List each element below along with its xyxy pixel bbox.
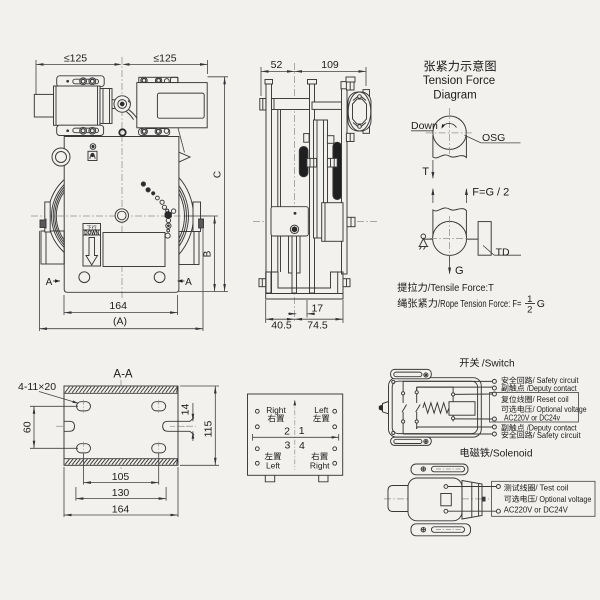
svg-text:/ Test coil: / Test coil	[535, 484, 568, 493]
svg-text:/Tensile Force:T: /Tensile Force:T	[428, 283, 494, 294]
svg-text:164: 164	[109, 300, 127, 312]
svg-text:17: 17	[311, 303, 323, 315]
svg-text:Right: Right	[266, 405, 286, 415]
svg-text:115: 115	[202, 420, 214, 437]
svg-text:A: A	[185, 277, 192, 288]
svg-text:164: 164	[112, 503, 130, 515]
svg-text:4-11×20: 4-11×20	[18, 381, 56, 393]
svg-text:T: T	[422, 166, 429, 178]
svg-text:A-A: A-A	[113, 369, 133, 381]
svg-text:DOWN: DOWN	[84, 230, 99, 236]
svg-text:109: 109	[321, 59, 339, 71]
svg-text:≤125: ≤125	[64, 53, 87, 65]
svg-text:Down: Down	[411, 120, 438, 132]
svg-text:G: G	[537, 298, 545, 310]
svg-text:OSG: OSG	[482, 132, 505, 144]
svg-text:G: G	[455, 265, 464, 277]
svg-text:/Solenoid: /Solenoid	[490, 448, 533, 459]
svg-text:2: 2	[284, 426, 290, 438]
svg-text:4: 4	[299, 440, 305, 452]
svg-text:TD: TD	[496, 246, 510, 258]
svg-text:74.5: 74.5	[307, 320, 328, 332]
svg-text:A: A	[46, 277, 53, 288]
svg-text:40.5: 40.5	[271, 320, 292, 332]
svg-text:60: 60	[22, 421, 34, 433]
svg-text:B: B	[203, 250, 214, 257]
svg-text:AC220V or DC24V: AC220V or DC24V	[504, 505, 569, 514]
svg-text:C: C	[212, 171, 223, 178]
svg-text:Left: Left	[266, 461, 281, 471]
svg-text:Left: Left	[314, 405, 329, 415]
svg-text:(A): (A)	[113, 316, 127, 328]
svg-text:/ Safety circuit: / Safety circuit	[533, 431, 582, 440]
svg-text:Tension Force: Tension Force	[423, 75, 495, 87]
svg-text:/Switch: /Switch	[482, 358, 515, 369]
svg-text:Diagram: Diagram	[433, 90, 476, 102]
svg-text:AC220V or DC24v: AC220V or DC24v	[504, 413, 560, 422]
svg-text:105: 105	[112, 471, 130, 483]
svg-text:/ Optional voltage: / Optional voltage	[535, 495, 591, 504]
svg-text:1: 1	[299, 425, 305, 437]
svg-text:≤125: ≤125	[153, 53, 176, 65]
svg-text:14: 14	[180, 404, 192, 416]
svg-text:52: 52	[271, 59, 283, 71]
svg-text:2: 2	[527, 305, 532, 316]
svg-text:/ Reset coil: / Reset coil	[533, 395, 569, 404]
svg-text:130: 130	[112, 487, 130, 499]
svg-text:/Rope Tension Force: F=: /Rope Tension Force: F=	[438, 299, 522, 310]
svg-text:F=G / 2: F=G / 2	[472, 187, 509, 199]
svg-text:/Deputy contact: /Deputy contact	[527, 384, 578, 393]
svg-text:Right: Right	[310, 461, 330, 471]
svg-text:3: 3	[284, 440, 290, 452]
